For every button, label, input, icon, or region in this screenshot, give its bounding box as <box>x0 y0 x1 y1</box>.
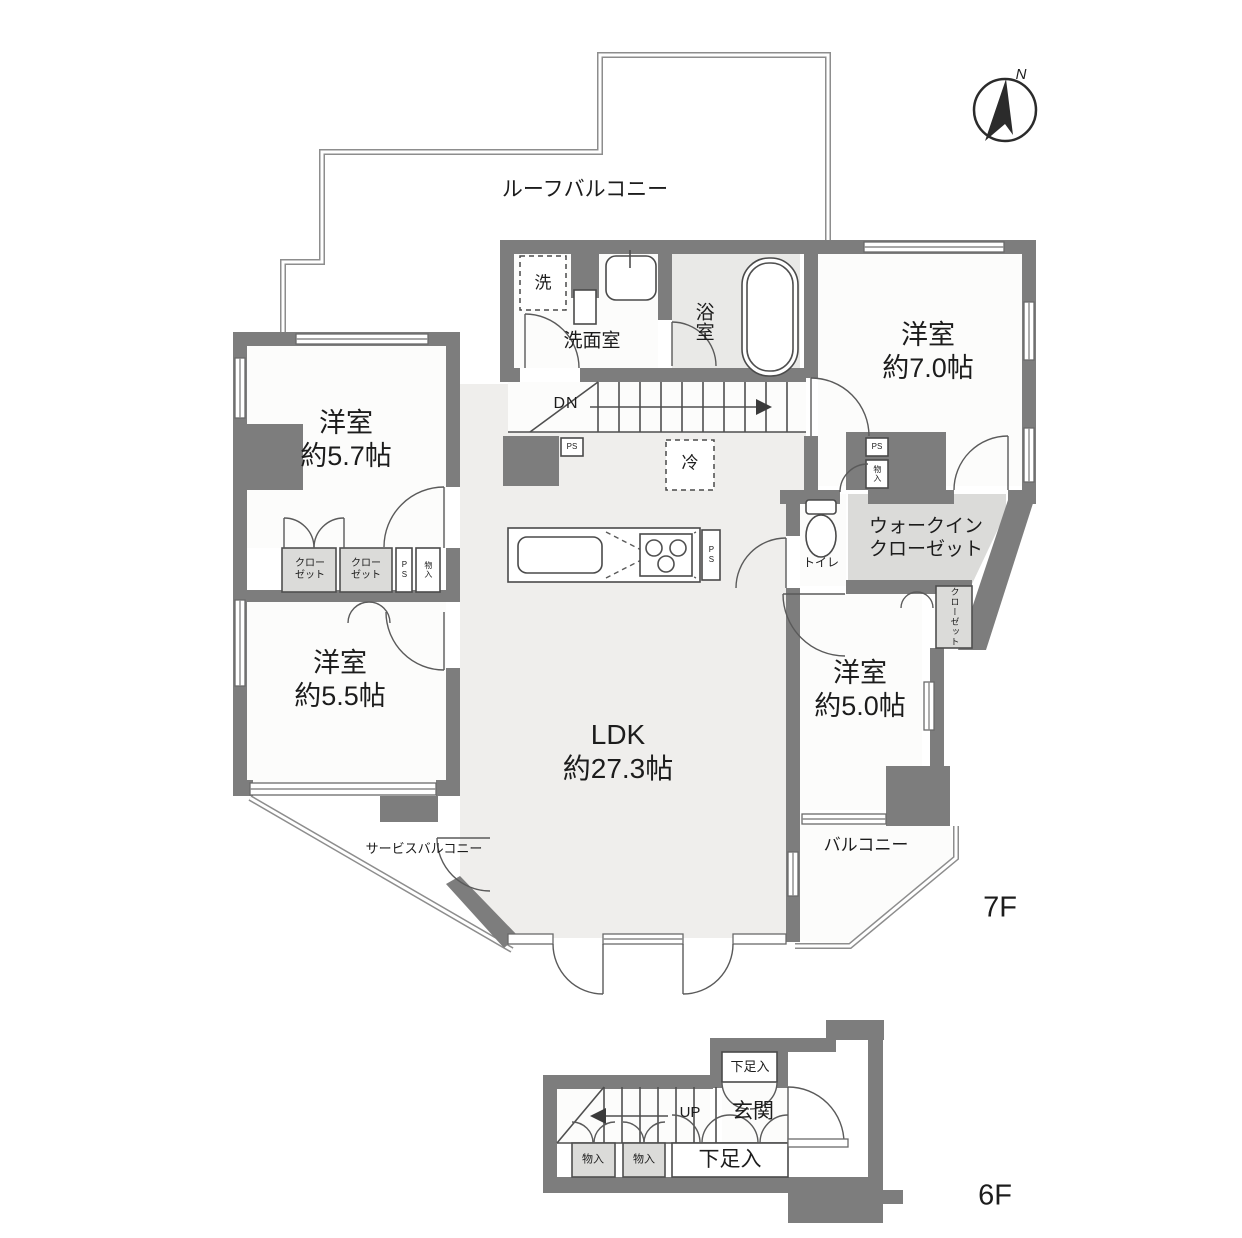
bedroom50-label: 洋室 約5.0帖 <box>814 657 906 723</box>
toilet-label: トイレ <box>803 556 839 571</box>
bedroom7-label: 洋室 約7.0帖 <box>882 319 974 385</box>
bedroom55-label: 洋室 約5.5帖 <box>294 647 386 713</box>
bedroom57-name: 洋室 <box>300 407 392 440</box>
duct-slot <box>574 290 596 324</box>
washroom-label: 洗面室 <box>563 329 620 352</box>
storage-6f-2-label: 物入 <box>633 1153 655 1166</box>
bedroom50-size: 約5.0帖 <box>814 690 906 723</box>
ps-label-closet-row: PS <box>399 560 409 580</box>
bedroom7-name: 洋室 <box>882 319 974 352</box>
ps-label-ldk: PS <box>567 442 578 452</box>
service-balcony-label: サービスバルコニー <box>366 841 483 857</box>
ps-label-kitchen: PS <box>706 545 716 565</box>
ps-label-bedroom7: PS <box>872 442 883 452</box>
stove <box>640 534 692 576</box>
floor-plan: ルーフバルコニー N 洗 洗面室 浴室 洋室 約7.0帖 DN 洋室 約5.7帖… <box>0 0 1242 1238</box>
washer-label: 洗 <box>535 274 552 295</box>
bedroom57-size: 約5.7帖 <box>300 440 392 473</box>
fridge-label: 冷 <box>682 454 699 475</box>
stairs-down-label: DN <box>553 394 578 414</box>
stairs-up-label: UP <box>680 1104 701 1122</box>
closet1-label: クロー ゼット <box>295 558 325 582</box>
bathtub <box>742 258 798 376</box>
bedroom55-size: 約5.5帖 <box>294 680 386 713</box>
wash-basin <box>606 250 656 300</box>
floor-6f-label: 6F <box>978 1178 1012 1213</box>
bedroom50-name: 洋室 <box>814 657 906 690</box>
balcony-label: バルコニー <box>824 836 909 857</box>
compass-north-label: N <box>1016 66 1027 84</box>
storage-label-closet-row: 物入 <box>423 561 433 579</box>
compass-icon <box>974 79 1036 141</box>
closet-vertical-label: クローゼット <box>949 587 960 647</box>
bedroom57-label: 洋室 約5.7帖 <box>300 407 392 473</box>
bedroom7-size: 約7.0帖 <box>882 352 974 385</box>
storage-6f-1-label: 物入 <box>582 1153 604 1166</box>
floor-7f-label: 7F <box>983 890 1017 925</box>
kitchen-counter <box>508 528 720 582</box>
ldk-label: LDK 約27.3帖 <box>563 718 674 786</box>
ldk-name: LDK <box>563 718 674 752</box>
shoe-cabinet-upper-label: 下足入 <box>730 1059 769 1075</box>
bathroom-label: 浴室 <box>691 302 714 342</box>
ldk-size: 約27.3帖 <box>563 752 674 786</box>
shoe-cabinet-lower-label: 下足入 <box>699 1147 762 1173</box>
roof-balcony-label: ルーフバルコニー <box>502 177 668 203</box>
bedroom55-name: 洋室 <box>294 647 386 680</box>
storage-label-bedroom7: 物入 <box>872 465 882 483</box>
entrance-label: 玄関 <box>732 1099 774 1125</box>
walk-in-closet-label: ウォークイン クローゼット <box>869 515 983 561</box>
toilet-fixture <box>806 500 836 557</box>
closet2-label: クロー ゼット <box>351 558 381 582</box>
